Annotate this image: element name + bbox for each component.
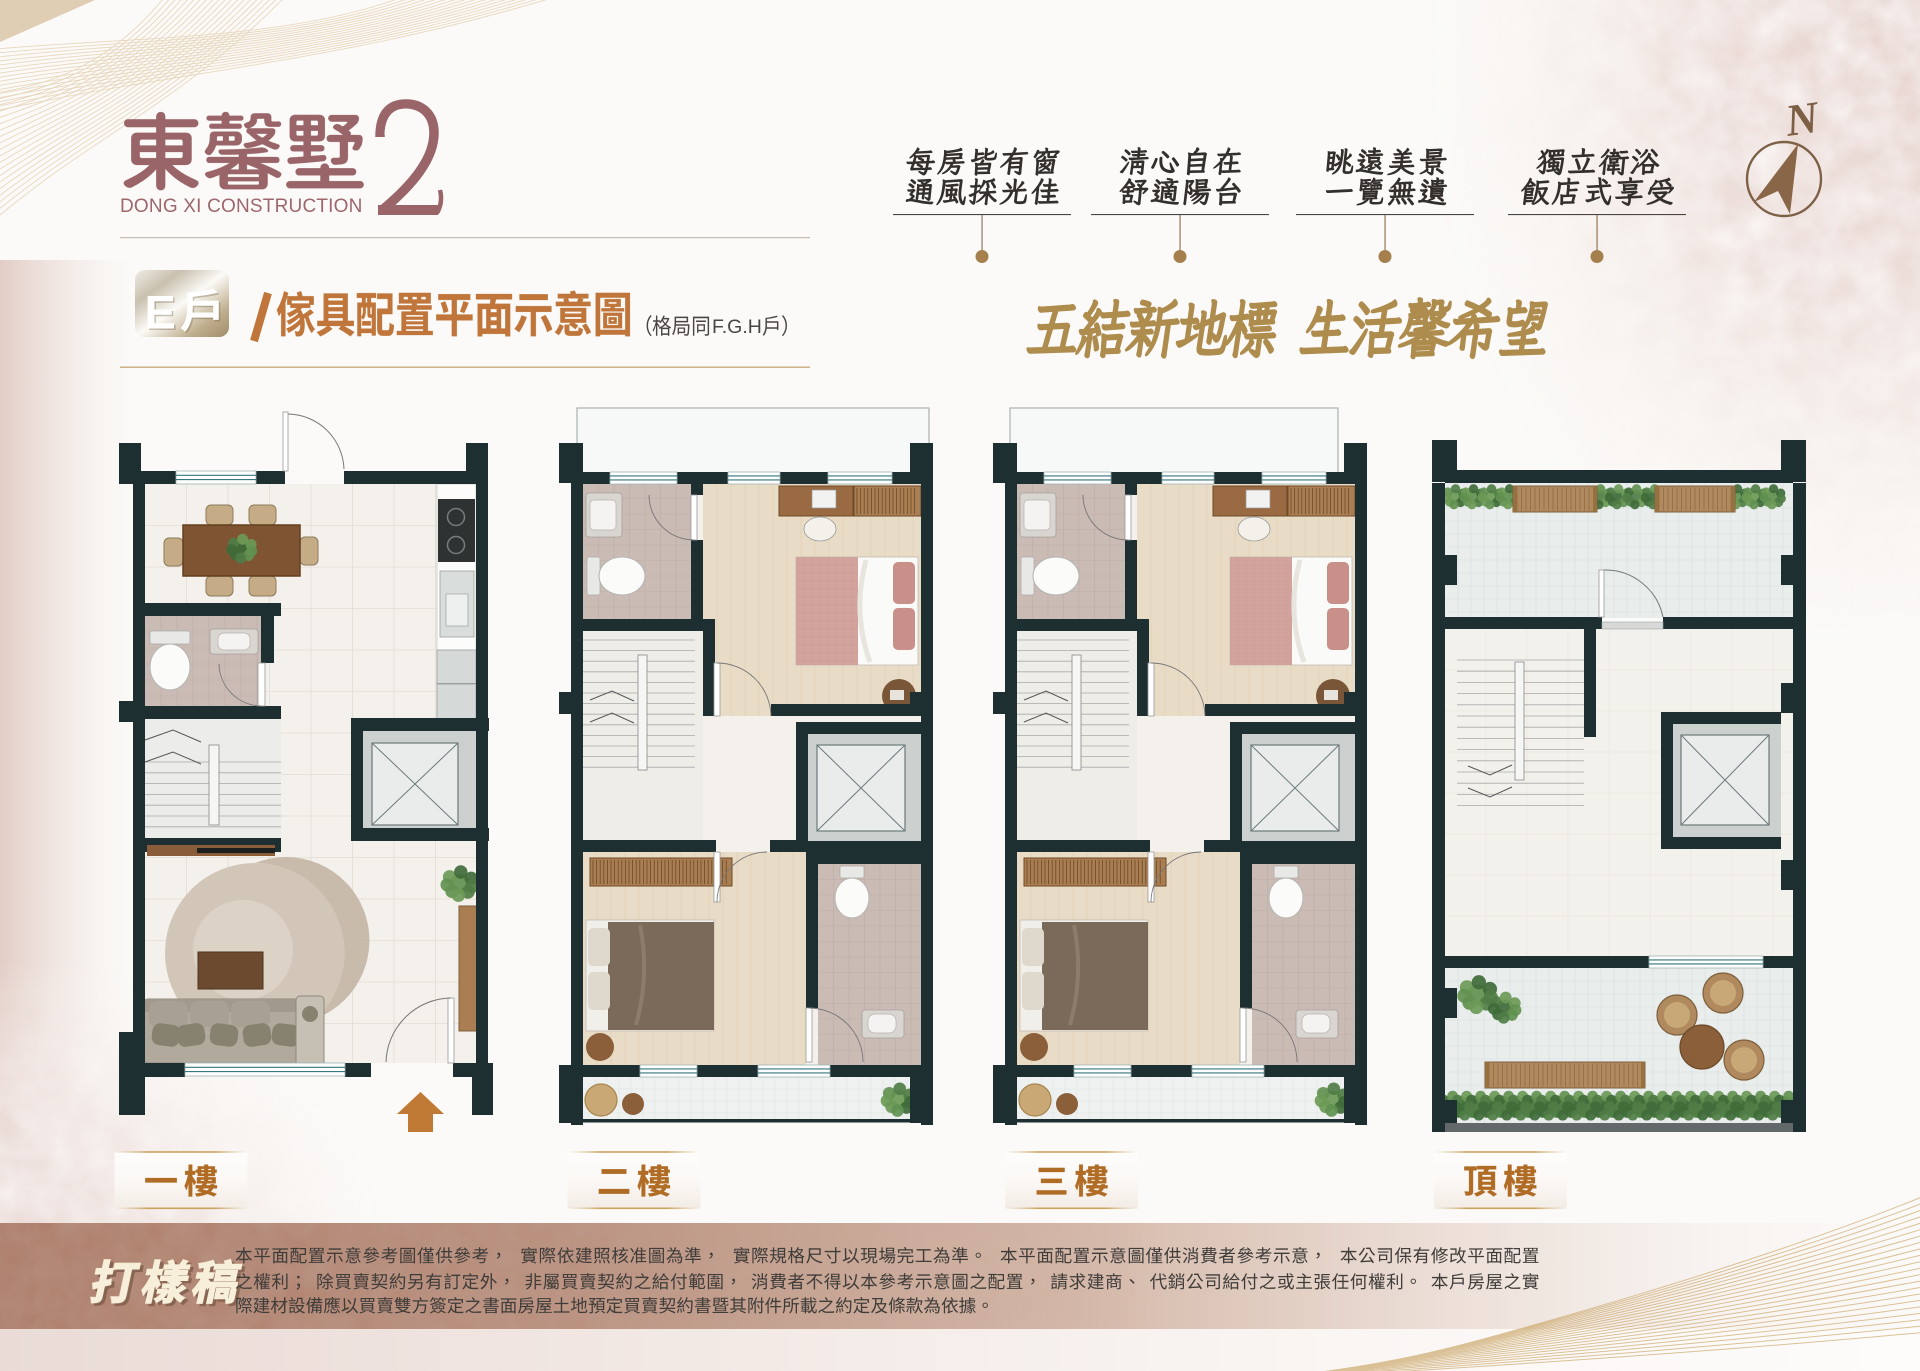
svg-text:F.G.H: F.G.H (712, 316, 762, 338)
svg-text:DONG XI CONSTRUCTION: DONG XI CONSTRUCTION (120, 196, 363, 217)
svg-text:E: E (145, 286, 176, 339)
